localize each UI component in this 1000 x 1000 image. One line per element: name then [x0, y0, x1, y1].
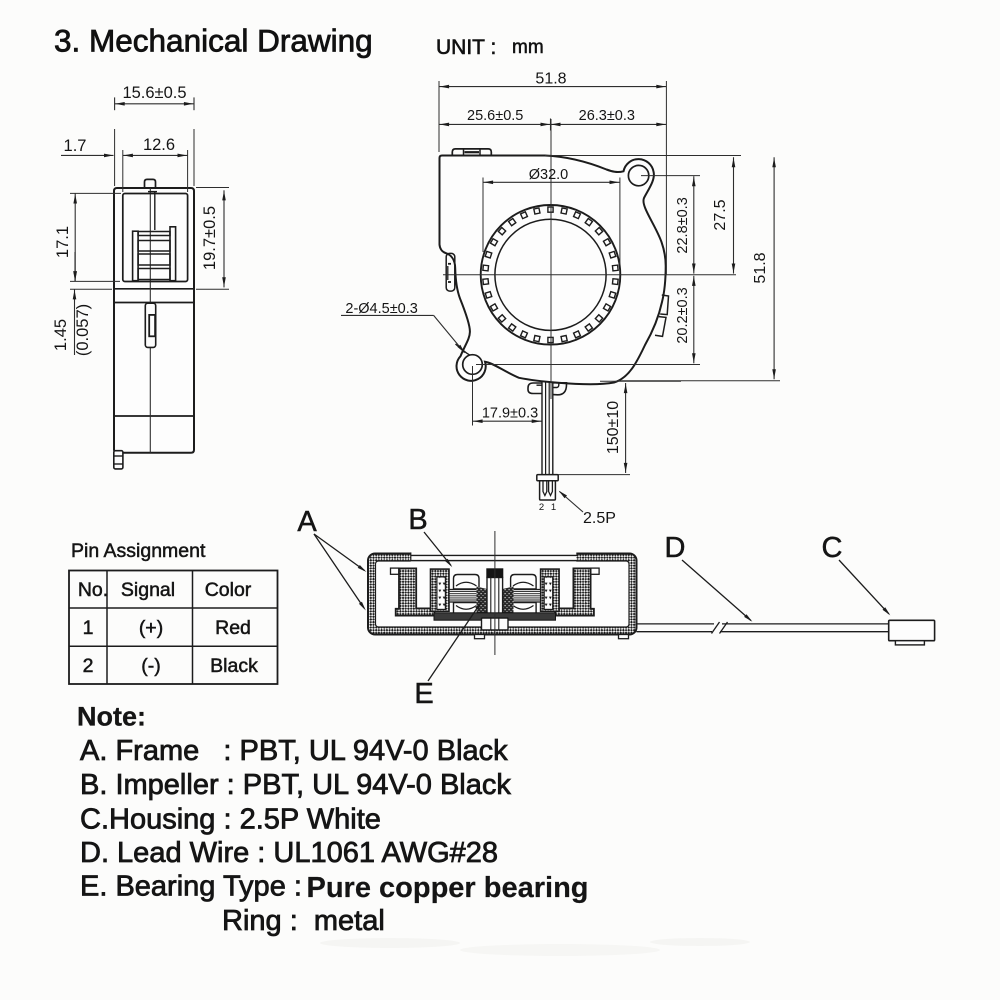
- svg-text:17.1: 17.1: [54, 226, 72, 258]
- svg-text:B. Impeller : PBT, UL 94V-0 Bl: B. Impeller : PBT, UL 94V-0 Black: [80, 769, 511, 801]
- svg-text:2.5P: 2.5P: [583, 510, 616, 527]
- svg-text:26.3±0.3: 26.3±0.3: [579, 108, 635, 124]
- svg-text:No.: No.: [78, 579, 108, 601]
- svg-text:Color: Color: [205, 579, 252, 601]
- svg-text:51.8: 51.8: [752, 252, 769, 283]
- svg-text:2-Ø4.5±0.3: 2-Ø4.5±0.3: [345, 301, 417, 317]
- svg-text:27.5: 27.5: [712, 199, 729, 230]
- svg-text:Black: Black: [210, 655, 258, 677]
- svg-text:17.9±0.3: 17.9±0.3: [482, 406, 538, 422]
- svg-text:Ø32.0: Ø32.0: [529, 167, 569, 183]
- svg-text:Pin Assignment: Pin Assignment: [71, 540, 206, 562]
- svg-text:C.Housing : 2.5P White: C.Housing : 2.5P White: [80, 804, 381, 836]
- svg-text:UNIT :: UNIT :: [436, 36, 496, 59]
- svg-text:2: 2: [539, 502, 544, 513]
- svg-text:150±10: 150±10: [605, 401, 622, 454]
- svg-text:D. Lead Wire : UL1061 AWG#28: D. Lead Wire : UL1061 AWG#28: [80, 837, 498, 869]
- svg-text:1.7: 1.7: [64, 137, 87, 155]
- svg-text:B: B: [408, 504, 427, 536]
- svg-text:3. Mechanical Drawing: 3. Mechanical Drawing: [54, 23, 373, 59]
- svg-text:D: D: [665, 532, 686, 564]
- svg-text:E: E: [414, 678, 433, 710]
- svg-text:22.8±0.3: 22.8±0.3: [675, 197, 691, 253]
- svg-text:51.8: 51.8: [535, 71, 566, 88]
- svg-text:15.6±0.5: 15.6±0.5: [122, 84, 186, 102]
- svg-text:12.6: 12.6: [143, 136, 175, 154]
- svg-text:25.6±0.5: 25.6±0.5: [467, 108, 523, 124]
- svg-text:1.45: 1.45: [52, 319, 70, 351]
- svg-text:1: 1: [551, 502, 556, 513]
- svg-text:2: 2: [83, 655, 94, 677]
- svg-text:20.2±0.3: 20.2±0.3: [675, 287, 691, 343]
- svg-text:C: C: [822, 532, 843, 564]
- svg-text:1: 1: [83, 617, 94, 639]
- svg-text:(-): (-): [141, 655, 160, 677]
- svg-text:mm: mm: [512, 37, 544, 58]
- svg-text:Ring : metal: Ring : metal: [222, 905, 385, 937]
- svg-text:(+): (+): [139, 617, 163, 639]
- svg-text:A. Frame : PBT, UL 94V-0 Bla: A. Frame : PBT, UL 94V-0 Black: [80, 735, 508, 767]
- svg-text:Note:: Note:: [77, 702, 146, 732]
- svg-text:Pure copper bearing: Pure copper bearing: [307, 872, 589, 904]
- svg-text:Red: Red: [215, 617, 251, 639]
- svg-text:E. Bearing Type :: E. Bearing Type :: [80, 871, 302, 903]
- svg-text:(0.057): (0.057): [74, 304, 92, 356]
- svg-text:A: A: [297, 506, 317, 538]
- svg-text:Signal: Signal: [121, 579, 175, 601]
- svg-text:19.7±0.5: 19.7±0.5: [201, 206, 219, 270]
